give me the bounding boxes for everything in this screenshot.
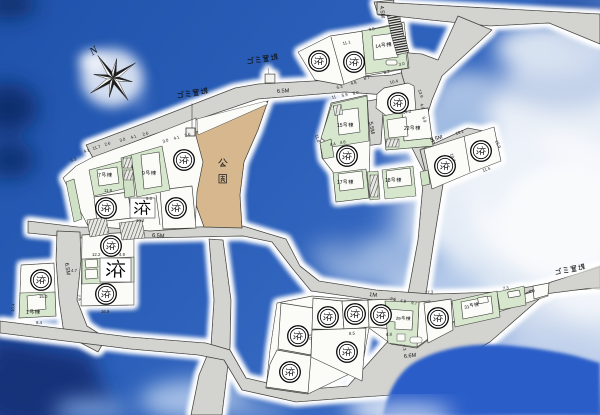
svg-text:8.8: 8.8 — [386, 332, 393, 337]
svg-text:17.3: 17.3 — [425, 289, 434, 295]
svg-text:1: 1 — [26, 310, 29, 316]
svg-text:6.5M: 6.5M — [152, 233, 165, 240]
svg-text:8.5: 8.5 — [349, 331, 356, 336]
svg-text:6.5M: 6.5M — [277, 88, 290, 95]
svg-text:10.4: 10.4 — [10, 303, 16, 312]
svg-text:10.2: 10.2 — [136, 218, 145, 223]
svg-text:1M: 1M — [369, 292, 378, 299]
svg-text:9.4: 9.4 — [36, 320, 43, 325]
svg-text:18: 18 — [385, 178, 391, 184]
svg-text:9.0: 9.0 — [146, 196, 153, 201]
svg-text:22: 22 — [404, 126, 410, 132]
svg-text:29: 29 — [396, 316, 402, 321]
svg-text:15.0: 15.0 — [39, 294, 48, 299]
svg-text:4.9: 4.9 — [119, 252, 126, 257]
svg-text:14: 14 — [375, 44, 381, 51]
svg-text:7: 7 — [98, 173, 101, 179]
svg-text:16.9: 16.9 — [101, 309, 110, 314]
svg-text:9: 9 — [142, 171, 145, 177]
svg-text:12.2: 12.2 — [92, 252, 101, 257]
svg-text:11.8: 11.8 — [104, 188, 113, 193]
svg-text:17: 17 — [337, 180, 343, 186]
svg-text:4.7: 4.7 — [71, 268, 78, 273]
svg-text:15: 15 — [337, 123, 343, 129]
